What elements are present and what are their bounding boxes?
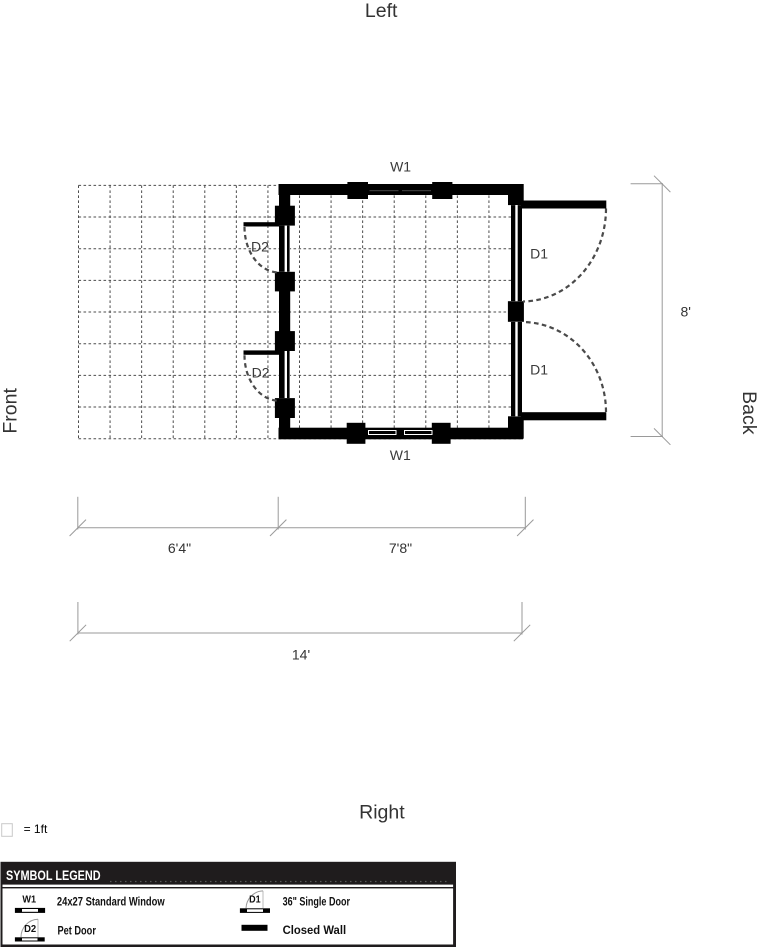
svg-text:Pet Door: Pet Door xyxy=(58,926,97,938)
svg-text:D1: D1 xyxy=(530,245,548,261)
svg-text:W1: W1 xyxy=(390,447,411,463)
svg-text:Back: Back xyxy=(738,391,760,435)
svg-text:W1: W1 xyxy=(22,894,36,906)
svg-text:Front: Front xyxy=(0,388,22,434)
svg-text:D2: D2 xyxy=(252,364,270,380)
svg-text:W1: W1 xyxy=(390,159,411,175)
svg-text:D1: D1 xyxy=(530,361,548,377)
svg-text:Closed Wall: Closed Wall xyxy=(283,925,347,937)
svg-text:Left: Left xyxy=(365,0,398,22)
svg-text:24x27 Standard Window: 24x27 Standard Window xyxy=(57,897,165,909)
svg-text:8': 8' xyxy=(681,303,691,319)
svg-text:14': 14' xyxy=(292,647,310,663)
svg-text:6'4": 6'4" xyxy=(168,540,191,556)
svg-text:= 1ft: = 1ft xyxy=(24,822,48,836)
svg-text:36" Single Door: 36" Single Door xyxy=(283,897,351,909)
svg-text:D2: D2 xyxy=(24,923,36,935)
svg-text:Right: Right xyxy=(359,802,405,824)
svg-text:7'8": 7'8" xyxy=(389,540,412,556)
svg-text:SYMBOL LEGEND: SYMBOL LEGEND xyxy=(6,868,101,883)
svg-text:D1: D1 xyxy=(249,894,261,906)
svg-text:D2: D2 xyxy=(251,239,269,255)
